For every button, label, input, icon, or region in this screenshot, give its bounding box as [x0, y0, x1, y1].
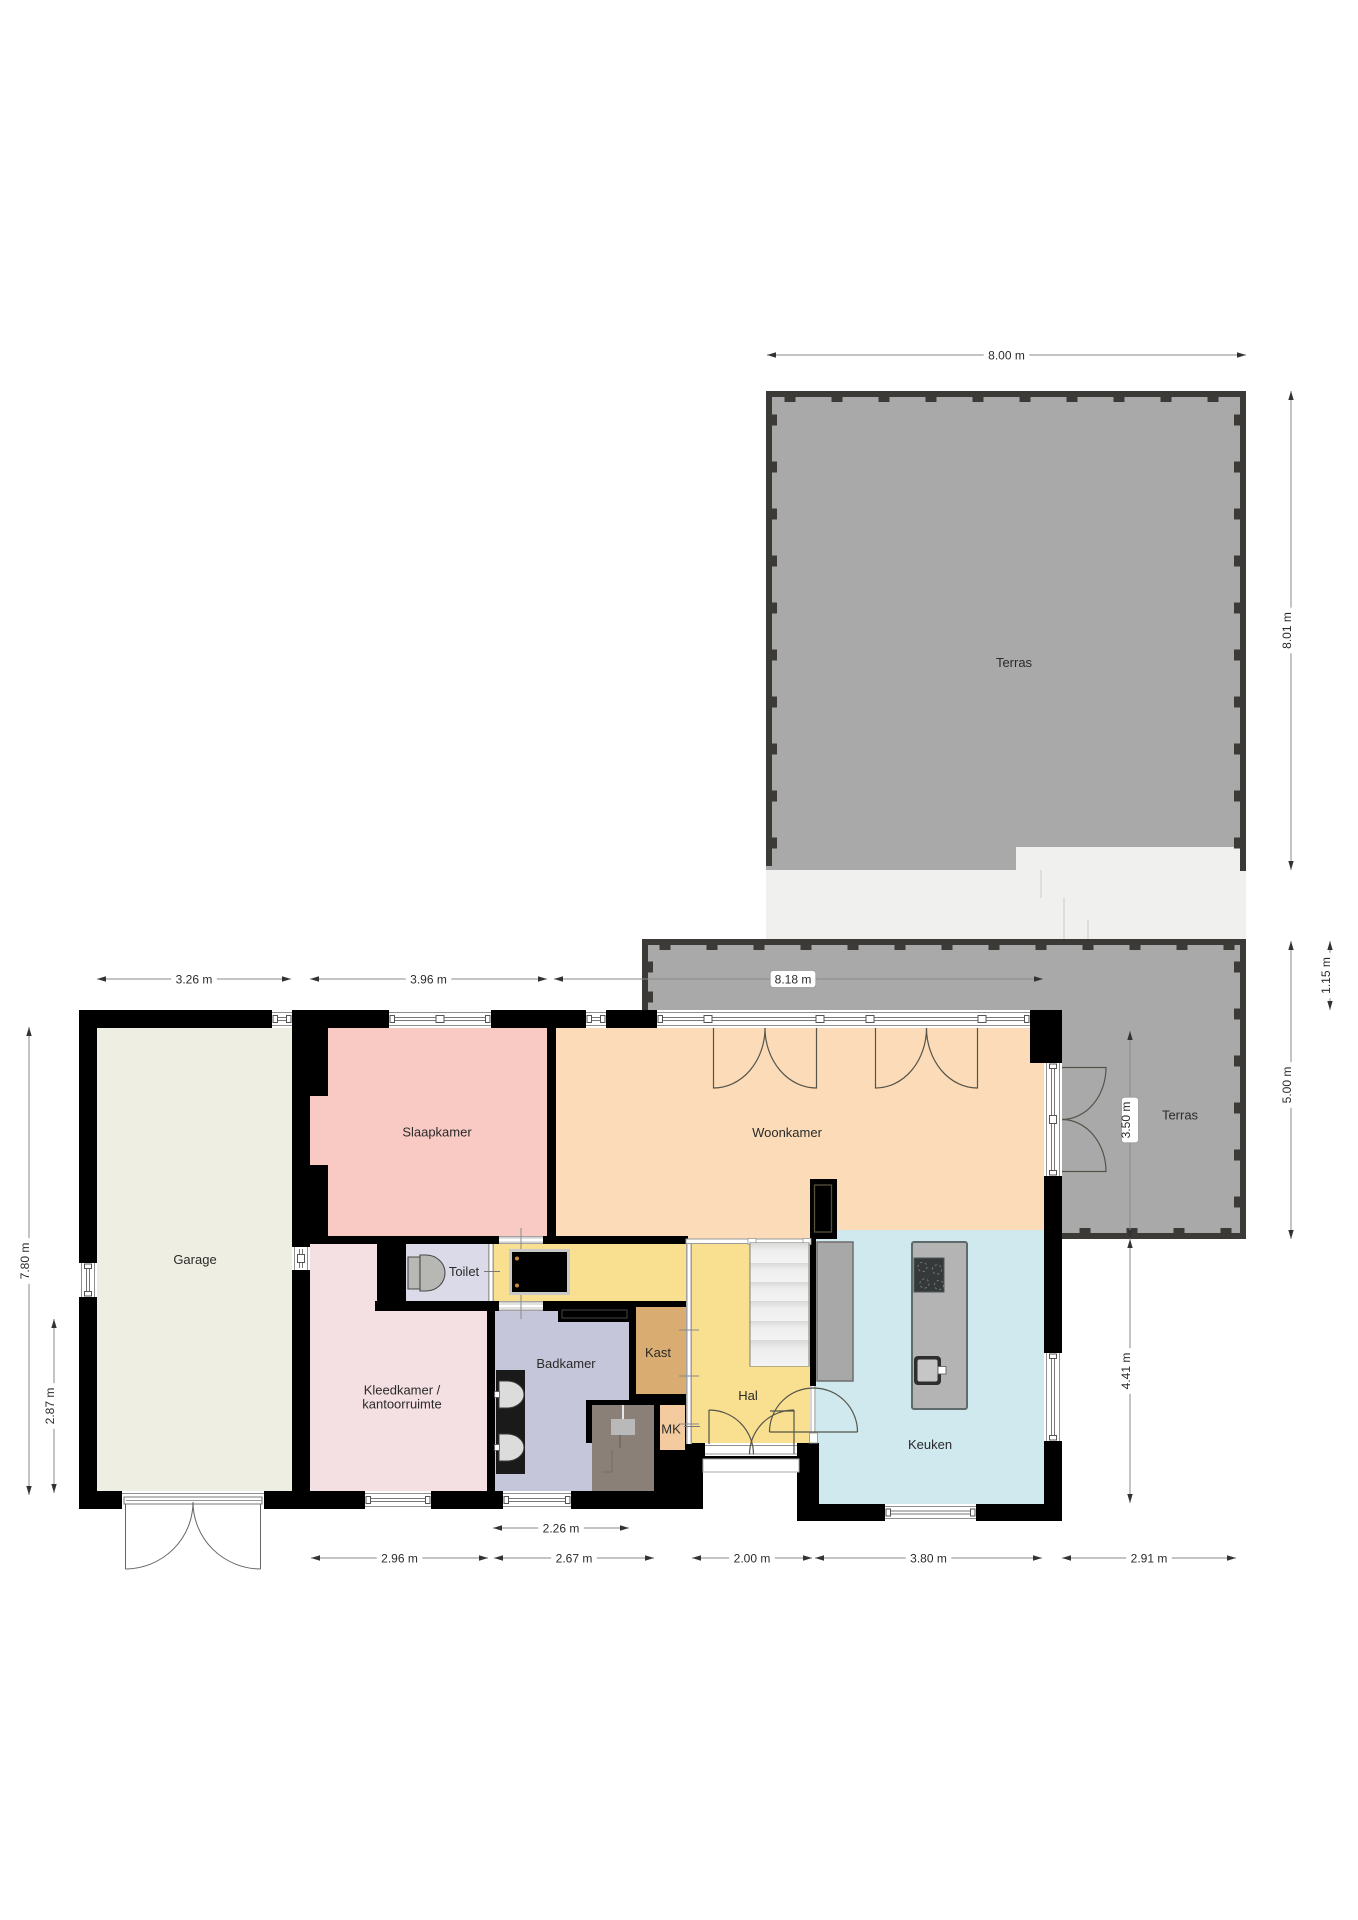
svg-text:3.50 m: 3.50 m [1119, 1102, 1133, 1139]
svg-text:Keuken: Keuken [908, 1437, 952, 1452]
svg-text:MK: MK [661, 1422, 681, 1437]
svg-text:7.80 m: 7.80 m [18, 1243, 32, 1280]
svg-text:kantoorruimte: kantoorruimte [362, 1397, 441, 1412]
svg-text:5.00 m: 5.00 m [1280, 1067, 1294, 1104]
svg-text:Badkamer: Badkamer [536, 1356, 596, 1371]
svg-text:Hal: Hal [738, 1388, 758, 1403]
svg-text:Slaapkamer: Slaapkamer [402, 1125, 472, 1140]
svg-text:2.91 m: 2.91 m [1131, 1551, 1168, 1565]
svg-text:3.80 m: 3.80 m [910, 1551, 947, 1565]
svg-text:Kast: Kast [645, 1345, 671, 1360]
svg-text:3.26 m: 3.26 m [176, 972, 213, 986]
svg-text:8.18 m: 8.18 m [775, 972, 812, 986]
svg-text:Kleedkamer /: Kleedkamer / [364, 1383, 441, 1398]
svg-text:2.00 m: 2.00 m [734, 1551, 771, 1565]
svg-text:Woonkamer: Woonkamer [752, 1125, 823, 1140]
svg-text:Toilet: Toilet [449, 1264, 480, 1279]
svg-text:2.26 m: 2.26 m [543, 1521, 580, 1535]
svg-text:2.87 m: 2.87 m [43, 1388, 57, 1425]
svg-text:1.15 m: 1.15 m [1319, 957, 1333, 994]
svg-text:Terras: Terras [1162, 1108, 1199, 1123]
svg-text:Terras: Terras [996, 655, 1033, 670]
svg-text:2.67 m: 2.67 m [556, 1551, 593, 1565]
svg-text:8.01 m: 8.01 m [1280, 612, 1294, 649]
svg-text:4.41 m: 4.41 m [1119, 1353, 1133, 1390]
svg-text:2.96 m: 2.96 m [381, 1551, 418, 1565]
svg-text:Garage: Garage [173, 1252, 216, 1267]
svg-text:8.00 m: 8.00 m [988, 348, 1025, 362]
svg-text:3.96 m: 3.96 m [410, 972, 447, 986]
